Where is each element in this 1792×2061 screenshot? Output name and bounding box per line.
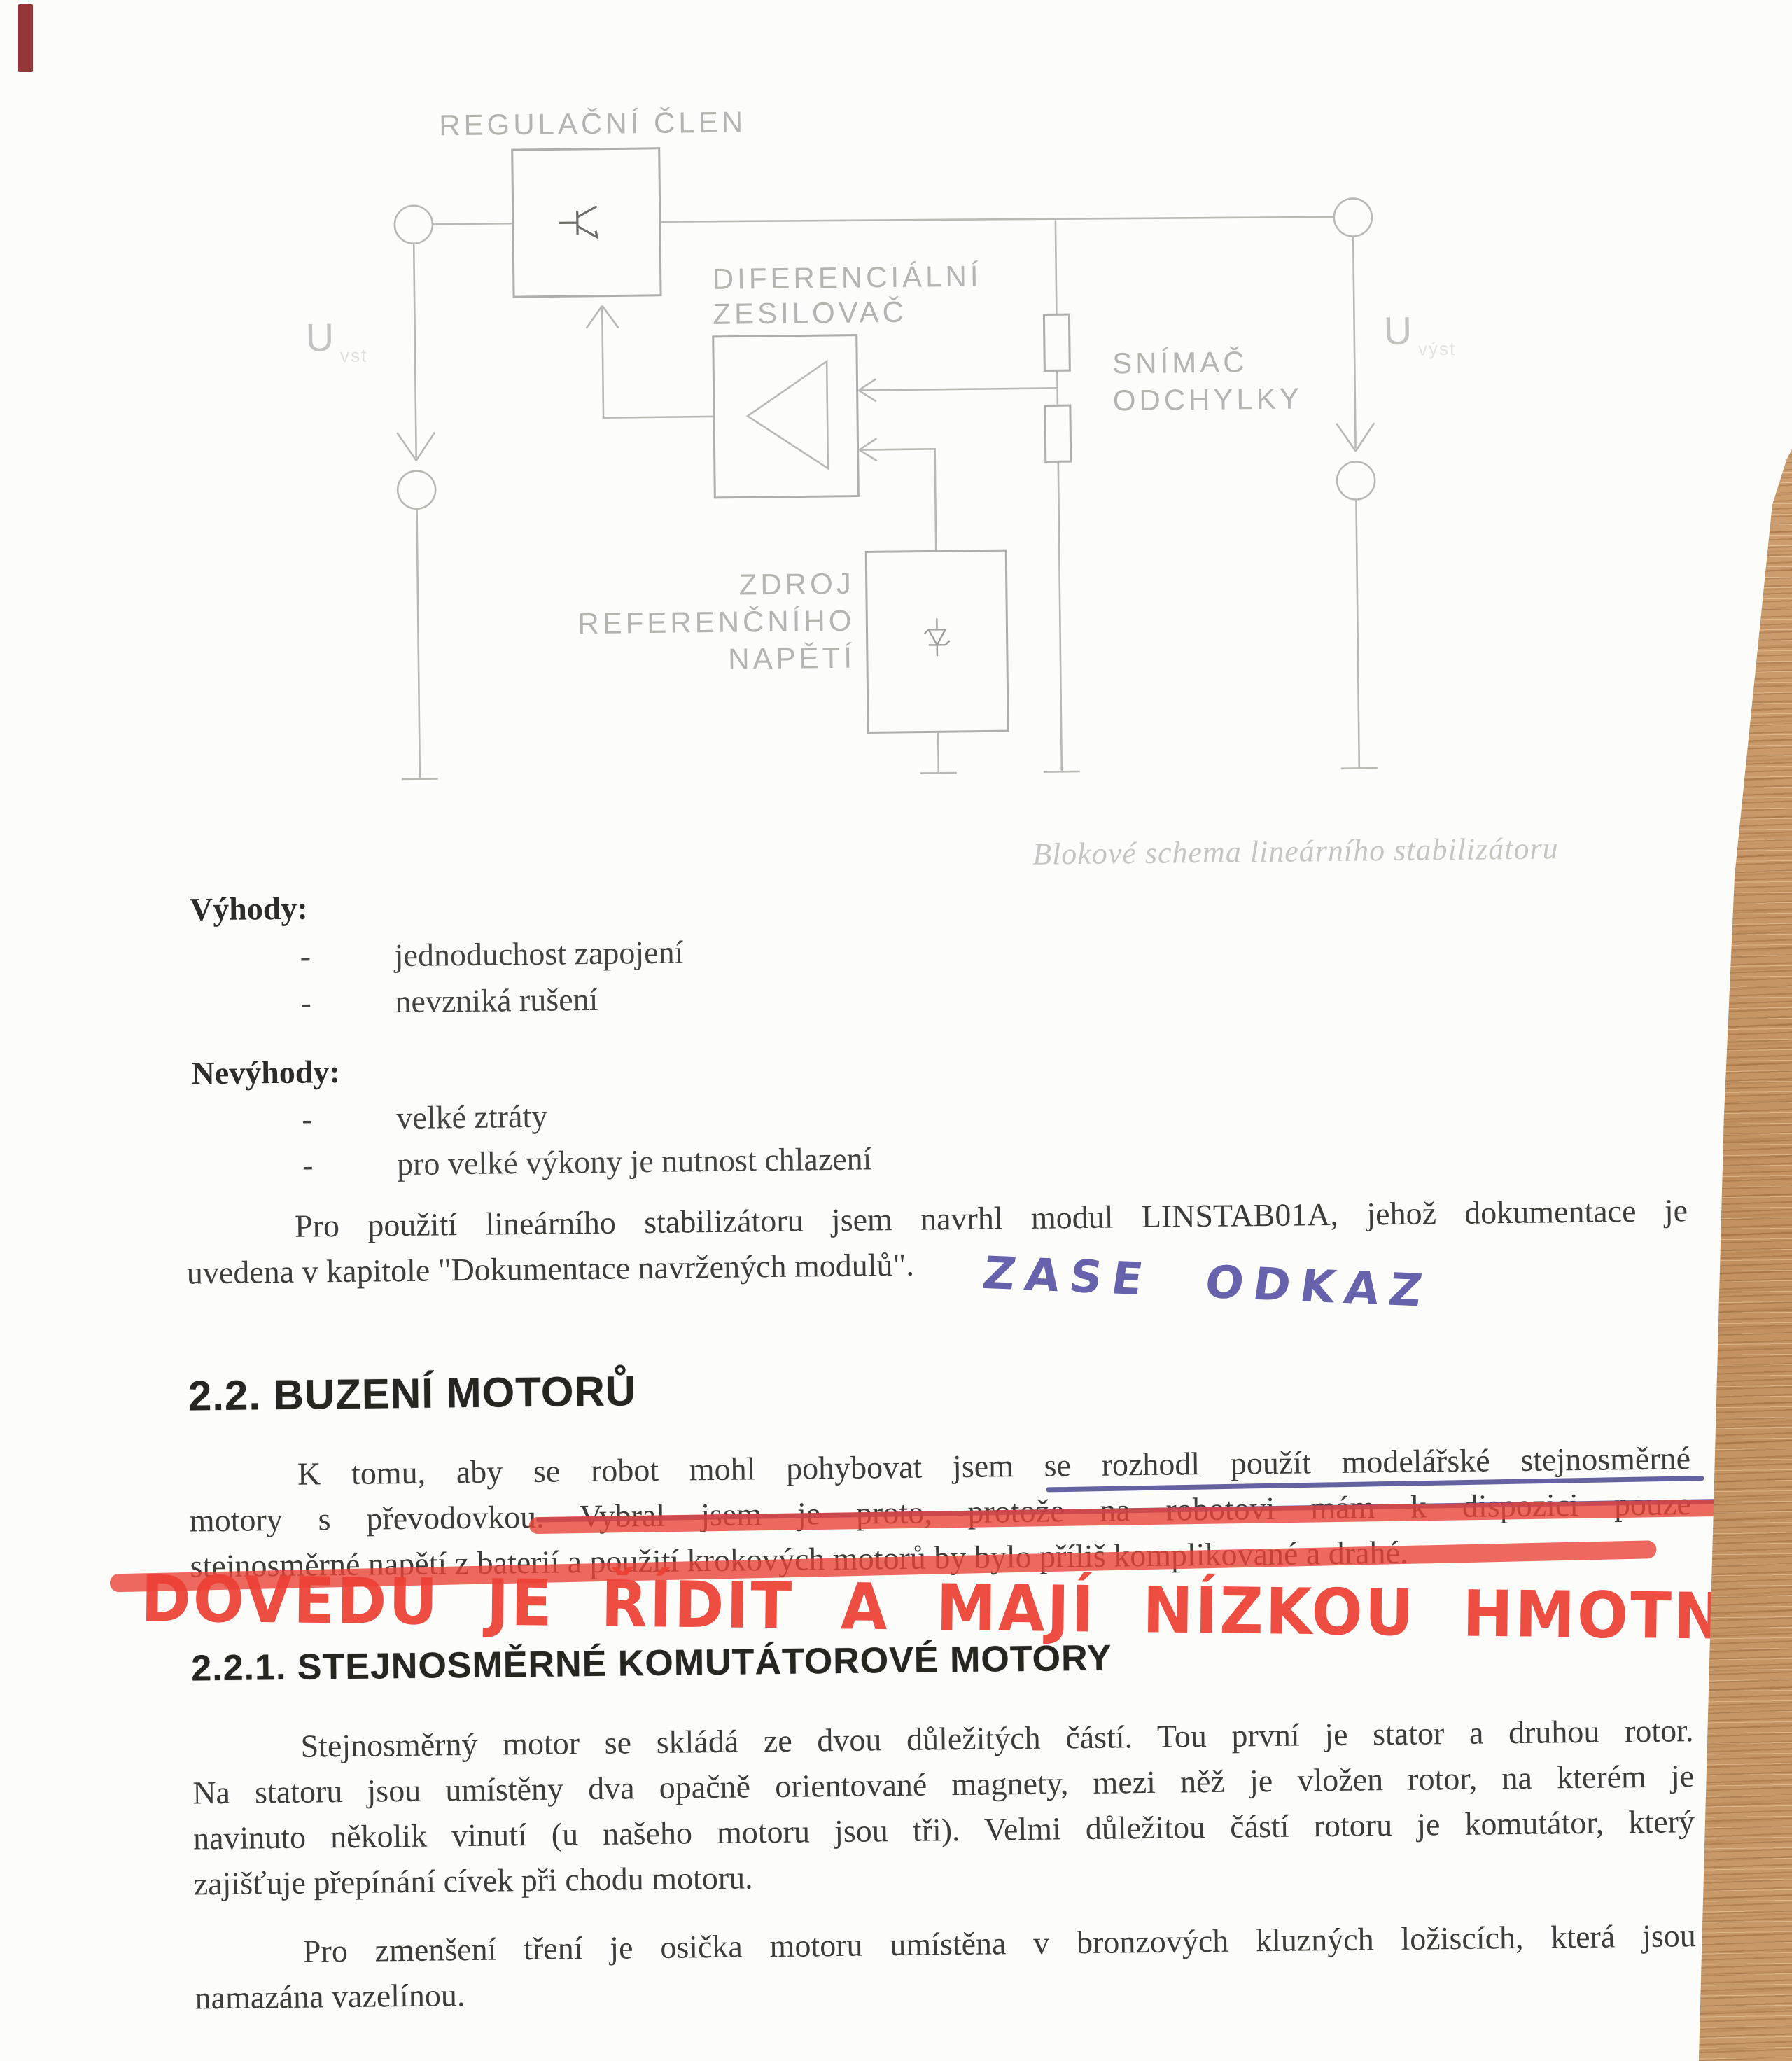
output-ground-lead (1338, 500, 1377, 769)
ref-source-label-line1: ZDROJ (738, 567, 855, 601)
list-item: - pro velké výkony je nutnost chlazení (302, 1140, 872, 1183)
input-voltage-arrow (395, 244, 435, 461)
sensor-resistor-lower (1045, 405, 1071, 461)
u-input-subscript: vst (340, 345, 368, 366)
disadvantage-item-text: velké ztráty (396, 1098, 547, 1136)
sensor-label-line1: SNÍMAČ (1112, 345, 1248, 379)
bullet-dash: - (300, 937, 395, 975)
diff-amp-output-wire (586, 305, 714, 418)
paragraph-line: uvedena v kapitole "Dokumentace navržený… (187, 1244, 915, 1294)
bullet-dash: - (302, 1099, 397, 1138)
list-item: - nevzniká rušení (300, 981, 598, 1021)
reference-ground-lead (920, 732, 957, 774)
regulator-label: REGULAČNÍ ČLEN (439, 105, 746, 141)
ref-source-label-line2: REFERENČNÍHO (577, 604, 855, 640)
scanned-document-page: REGULAČNÍ ČLEN DIFERENCIÁLNÍ ZESILOVAČ S… (0, 0, 1792, 2061)
linear-stabilizer-block-diagram: REGULAČNÍ ČLEN DIFERENCIÁLNÍ ZESILOVAČ S… (0, 0, 1791, 928)
reference-input-wire (859, 438, 936, 552)
paragraph-line: Pro zmenšení tření je osička motoru umís… (303, 1915, 1697, 1973)
bullet-dash: - (302, 1145, 398, 1184)
advantage-item-text: nevzniká rušení (395, 981, 598, 1020)
output-terminal-top (1334, 198, 1373, 237)
page-content: REGULAČNÍ ČLEN DIFERENCIÁLNÍ ZESILOVAČ S… (0, 0, 1792, 2061)
u-output-label: U (1383, 309, 1412, 353)
paragraph-line: Pro použití lineárního stabilizátoru jse… (295, 1189, 1688, 1248)
figure-caption: Blokové schema lineárního stabilizátoru (1032, 831, 1559, 872)
sensor-resistor-upper (1044, 314, 1070, 370)
list-item: - jednoduchost zapojení (300, 933, 683, 974)
disadvantages-heading: Nevýhody: (191, 1051, 340, 1094)
regulator-box (512, 148, 661, 297)
advantages-heading: Výhody: (190, 888, 308, 931)
input-ground-lead (399, 509, 438, 779)
output-terminal-bottom (1337, 461, 1375, 500)
diff-amp-box (713, 335, 859, 498)
input-terminal-bottom (398, 470, 436, 509)
sensor-label-line2: ODCHYLKY (1113, 382, 1303, 417)
output-voltage-arrow (1334, 237, 1374, 452)
ref-source-label-line3: NAPĚTÍ (728, 641, 855, 676)
list-item: - velké ztráty (302, 1098, 547, 1138)
section-2-2-heading: 2.2. BUZENÍ MOTORŮ (188, 1367, 636, 1420)
paragraph-line: namazána vazelínou. (195, 1974, 465, 2019)
section-2-2-1-heading: 2.2.1. STEJNOSMĚRNÉ KOMUTÁTOROVÉ MOTORY (191, 1637, 1112, 1690)
disadvantage-item-text: pro velké výkony je nutnost chlazení (397, 1140, 872, 1182)
u-input-label: U (305, 315, 334, 359)
advantage-item-text: jednoduchost zapojení (394, 933, 683, 974)
diff-amp-label-line1: DIFERENCIÁLNÍ (713, 260, 982, 295)
sensor-tap-wire (858, 377, 1057, 401)
sensor-divider-wire (1037, 220, 1080, 772)
input-terminal-top (395, 205, 433, 244)
diff-amp-label-line2: ZESILOVAČ (713, 295, 907, 330)
handwritten-blue-note: ZASE ODKAZ (979, 1248, 1435, 1318)
paragraph-line: zajišťuje přepínání cívek při chodu moto… (193, 1857, 753, 1905)
reference-source-box (866, 550, 1008, 732)
u-output-subscript: výst (1418, 338, 1457, 360)
bullet-dash: - (300, 983, 395, 1021)
